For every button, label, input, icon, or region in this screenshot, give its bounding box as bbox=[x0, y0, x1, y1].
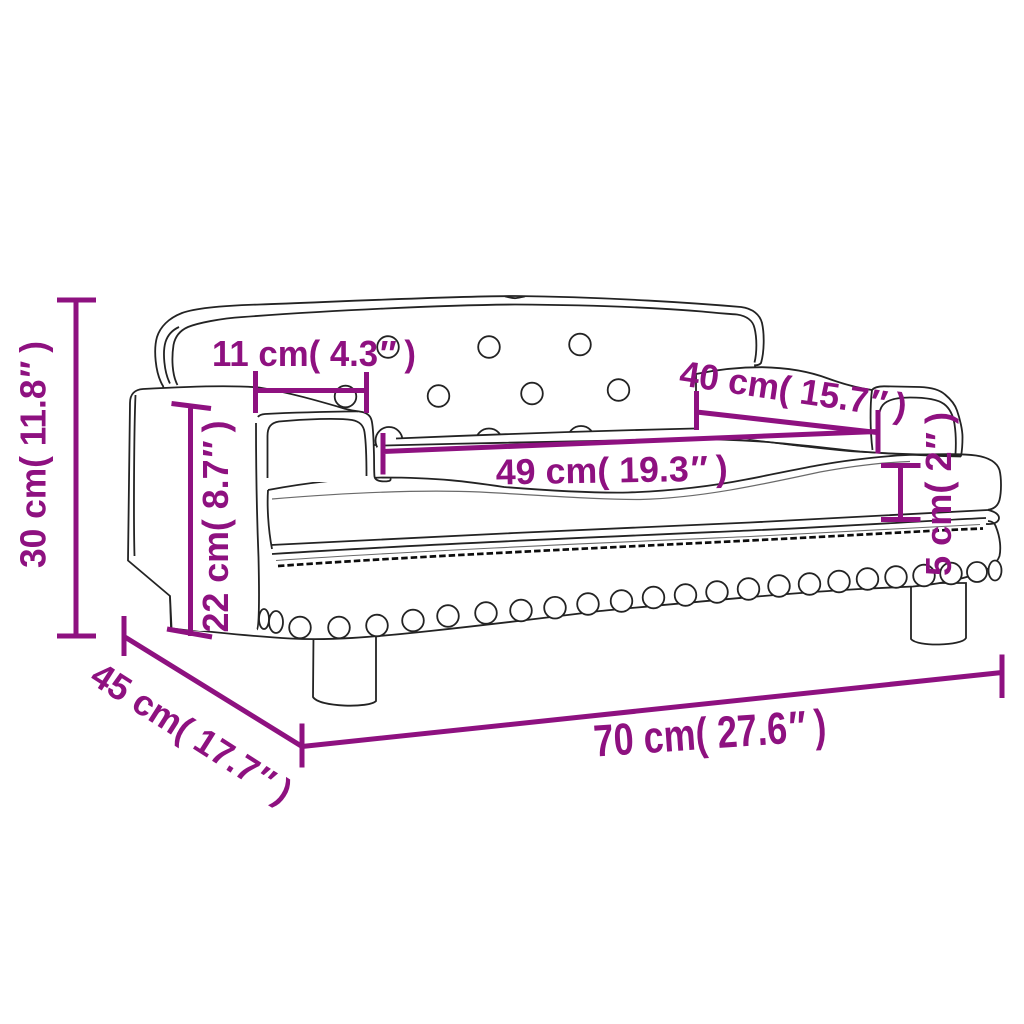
svg-text:11 cm( 4.3″ ): 11 cm( 4.3″ ) bbox=[212, 333, 416, 374]
svg-text:49 cm( 19.3″ ): 49 cm( 19.3″ ) bbox=[495, 447, 728, 492]
svg-text:30 cm( 11.8″ ): 30 cm( 11.8″ ) bbox=[13, 341, 54, 568]
svg-text:22 cm( 8.7″ ): 22 cm( 8.7″ ) bbox=[195, 421, 236, 633]
svg-text:5 cm( 2″ ): 5 cm( 2″ ) bbox=[918, 412, 959, 576]
